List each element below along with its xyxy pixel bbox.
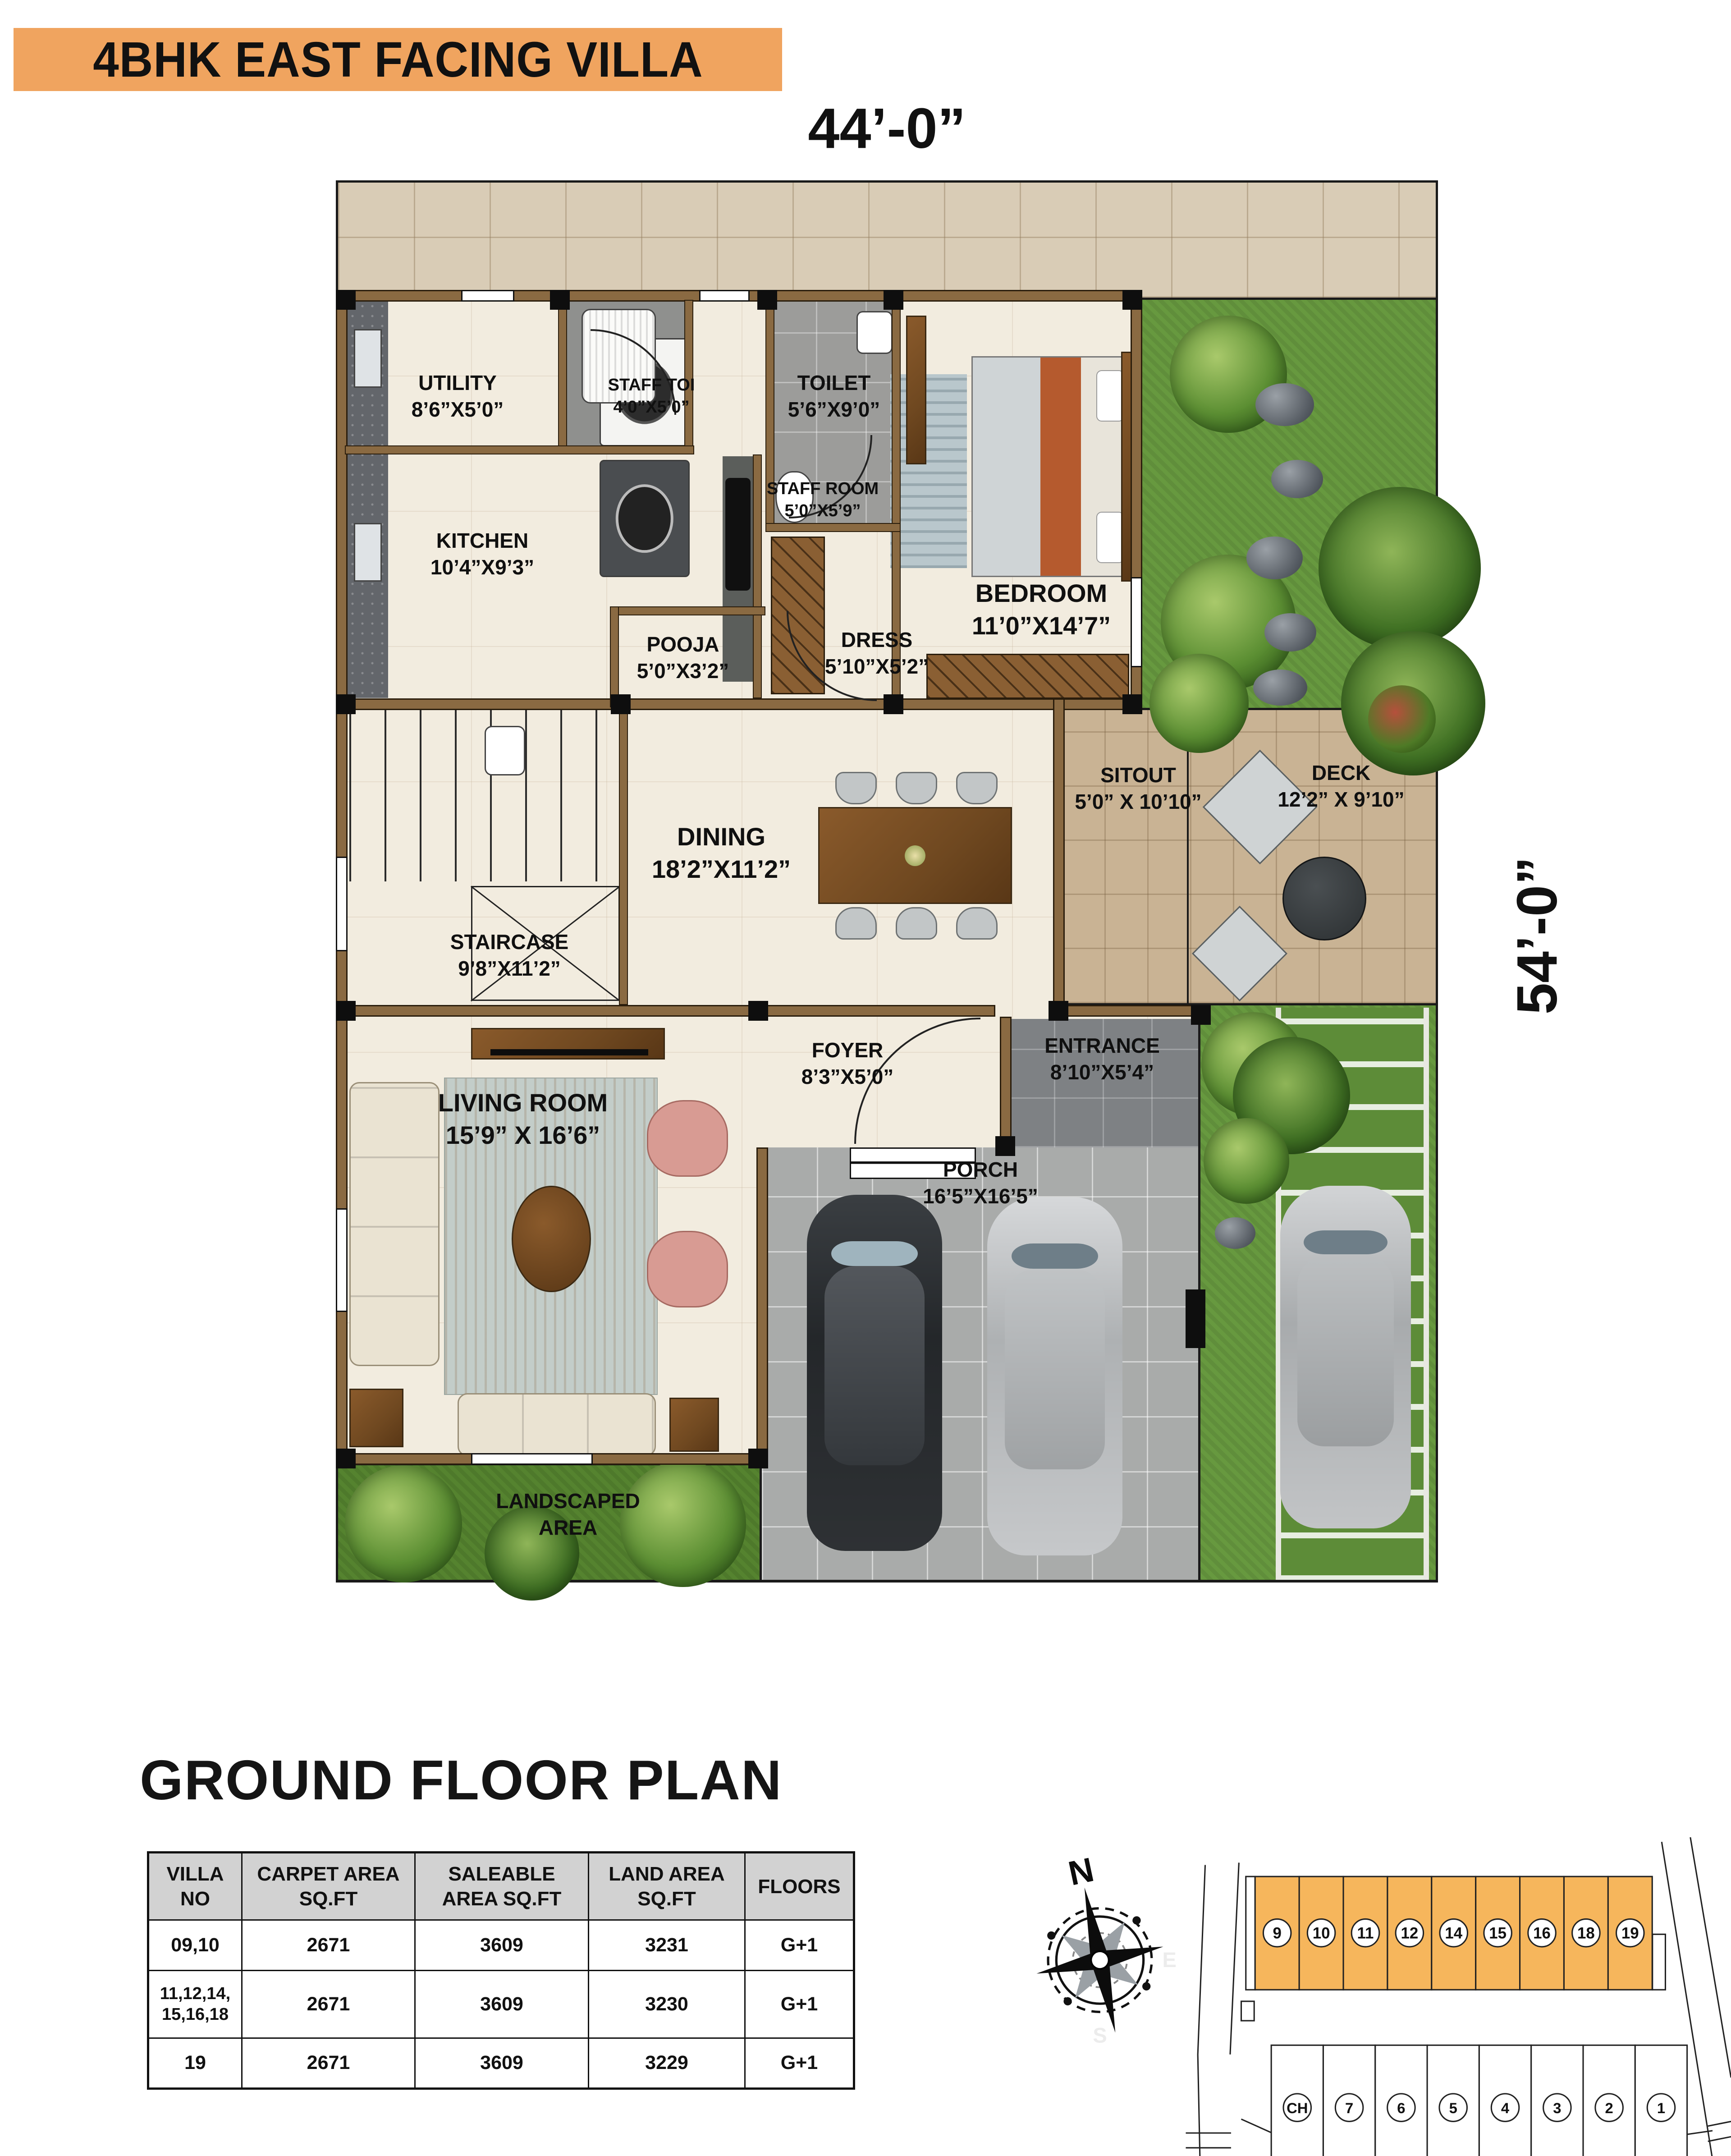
column-marker [336,1449,356,1468]
floor-plan-page: 4BHK EAST FACING VILLA 44’-0” 54’-0” [0,0,1731,2156]
cell-saleable-area: 3609 [415,2038,589,2089]
room-name: DINING [624,821,818,853]
room-name: STAFF ROOM [766,478,879,500]
bedroom-rug [890,374,967,568]
column-marker [1122,290,1142,310]
unit-number: 1 [1657,2100,1665,2116]
cell-land-area: 3231 [589,1920,745,1971]
unit-number: 6 [1397,2100,1405,2116]
car-roof [1297,1254,1394,1446]
unit-number: 12 [1401,1924,1418,1942]
cell-land-area: 3230 [589,1971,745,2038]
garden-plant [345,1465,462,1583]
road-line [1708,2137,1731,2141]
room-dims: 5’10”X5’2” [800,653,953,680]
room-name: KITCHEN [385,528,579,554]
title-banner: 4BHK EAST FACING VILLA [14,28,782,91]
unit-number: 16 [1533,1924,1551,1942]
dining-chair [896,772,937,804]
site-key-plan: 9 10 11 12 14 15 16 18 19 [1177,1837,1731,2156]
unit-number: 11 [1357,1924,1374,1942]
palm-tree [1319,487,1481,649]
tv-console [471,1028,665,1060]
cell-villa-no: 09,10 [148,1920,242,1971]
dimension-width: 44’-0” [336,96,1438,161]
dimension-height: 54’-0” [1503,818,1571,1053]
side-table [669,1398,719,1452]
column-marker [884,694,903,714]
side-table [349,1389,403,1447]
room-name: POOJA [615,631,751,658]
room-dims: 15’9” X 16’6” [417,1119,629,1151]
car-silver [987,1197,1122,1555]
armchair [647,1100,728,1177]
cell-saleable-area: 3609 [415,1920,589,1971]
room-dims: 8’6”X5’0” [363,396,552,423]
wall-segment [756,1147,768,1465]
compass-east-label: E [1162,1948,1176,1972]
column-marker [1049,1001,1068,1021]
column-marker [1186,1289,1205,1348]
room-label-foyer: FOYER8’3”X5’0” [769,1037,926,1090]
garden-rock [1215,1217,1255,1249]
room-name: BEDROOM [935,577,1147,610]
room-dims: 11’0”X14’7” [935,610,1147,642]
room-label-living: LIVING ROOM15’9” X 16’6” [417,1087,629,1151]
room-label-deck: DECK12’2” X 9’10” [1251,760,1431,813]
window [336,857,348,951]
unit-number: 19 [1621,1924,1639,1942]
road-line [1230,1862,1239,2054]
room-label-dress: DRESS5’10”X5’2” [800,627,953,680]
column-marker [1191,1005,1211,1025]
room-dims: 8’10”X5’4” [1012,1059,1192,1086]
window [699,290,750,302]
room-label-toilet: TOILET5’6”X9’0” [769,370,899,423]
compass-rose: N E S [1023,1855,1177,2044]
cell-floors: G+1 [745,2038,854,2089]
site-highlight-row: 9 10 11 12 14 15 16 18 19 [1255,1876,1652,1990]
room-dims: 5’0”X3’2” [615,658,751,684]
garden-plant [1149,654,1249,753]
car-windshield [1012,1243,1098,1269]
column-marker [884,290,903,310]
sink [354,523,382,582]
wall-segment [336,698,1142,710]
column-marker [550,290,570,310]
compass-north-label: N [1065,1855,1097,1893]
room-label-utility: UTILITY8’6”X5’0” [363,370,552,423]
unit-number: 4 [1501,2100,1510,2116]
coffee-table [512,1186,591,1292]
room-label-pooja: POOJA5’0”X3’2” [615,631,751,684]
table-row: 19 2671 3609 3229 G+1 [148,2038,854,2089]
dining-chair [956,772,998,804]
compass-dot [1141,1982,1151,1991]
road-line [1198,1865,1205,2156]
cell-floors: G+1 [745,1971,854,2038]
column-marker [336,290,356,310]
wash-basin [856,311,893,354]
column-marker [336,694,356,714]
unit-number: 14 [1445,1924,1462,1942]
cell-saleable-area: 3609 [415,1971,589,2038]
car-windshield [1304,1230,1388,1254]
hob [725,478,751,591]
room-name: LANDSCAPED AREA [494,1488,642,1541]
room-label-staircase: STAIRCASE9’8”X11’2” [412,929,606,982]
site-other-row: CH 7 6 5 4 3 2 1 [1271,2045,1687,2156]
column-marker [995,1136,1015,1156]
room-dims: 10’4”X9’3” [385,554,579,581]
cell-villa-no: 11,12,14, 15,16,18 [148,1971,242,2038]
room-label-kitchen: KITCHEN10’4”X9’3” [385,528,579,581]
car-windshield [831,1241,918,1266]
room-label-sitout: SITOUT5’0” X 10’10” [1064,762,1213,815]
room-label-staff-toi: STAFF TOI4’0”X5’0” [606,374,696,418]
room-name: UTILITY [363,370,552,396]
wardrobe [926,654,1129,699]
tv [490,1049,648,1055]
room-name: SITOUT [1064,762,1213,789]
column-marker [748,1001,768,1021]
unit-number: 10 [1313,1924,1330,1942]
flower-bush [1368,685,1436,753]
sofa-short [458,1393,656,1456]
col-header: VILLA NO [148,1853,242,1920]
rear-patio-tiles [336,180,1438,300]
window [336,1208,348,1312]
washer-drum [616,484,673,553]
cell-carpet-area: 2671 [242,1971,415,2038]
wash-basin [485,726,525,775]
table-row: 09,10 2671 3609 3231 G+1 [148,1920,854,1971]
room-dims: 5’0”X5’9” [766,500,879,522]
unit-number: 15 [1489,1924,1507,1942]
room-dims: 18’2”X11’2” [624,853,818,885]
unit-number: 7 [1345,2100,1353,2116]
room-dims: 5’0” X 10’10” [1064,789,1213,815]
room-name: ENTRANCE [1012,1032,1192,1059]
bed-blanket [973,358,1040,576]
column-marker [1122,694,1142,714]
room-label-staff-room: STAFF ROOM5’0”X5’9” [766,478,879,522]
car-driveway [1280,1186,1411,1528]
site-stair-block [1653,1934,1666,1990]
column-marker [748,1449,768,1468]
car-roof [824,1266,925,1465]
stepping-stone [1253,670,1307,706]
site-sliver [1246,1876,1255,1990]
room-dims: 16’5”X16’5” [890,1183,1071,1210]
cell-villa-no: 19 [148,2038,242,2089]
unit-number: 5 [1449,2100,1457,2116]
table-header-row: VILLA NO CARPET AREA SQ.FT SALEABLE AREA… [148,1853,854,1920]
room-name: STAFF TOI [606,374,696,396]
room-name: TOILET [769,370,899,396]
wall-segment [1053,1005,1202,1017]
dining-chair [835,907,877,940]
stepping-stone [1264,613,1316,651]
compass-south-label: S [1093,2023,1107,2044]
room-label-dining: DINING18’2”X11’2” [624,821,818,885]
plan-right-border [1436,300,1438,1583]
bed-runner [1040,358,1081,576]
unit-number: CH [1287,2100,1308,2116]
col-header: SALEABLE AREA SQ.FT [415,1853,589,1920]
room-name: PORCH [890,1156,1071,1183]
cell-carpet-area: 2671 [242,1920,415,1971]
section-title: GROUND FLOOR PLAN [140,1748,783,1812]
column-marker [336,1001,356,1021]
room-name: LIVING ROOM [417,1087,629,1119]
wall-segment [753,454,762,698]
unit-number: 18 [1577,1924,1595,1942]
wall-segment [336,1005,995,1017]
unit-number: 9 [1273,1924,1282,1942]
wall-segment [1000,1017,1012,1148]
wall-segment [765,523,901,532]
room-label-bedroom: BEDROOM11’0”X14’7” [935,577,1147,642]
column-marker [757,290,777,310]
tv-panel [906,316,926,464]
road-line [1690,1837,1731,2078]
washing-machine [600,460,690,577]
dining-chair [956,907,998,940]
cell-carpet-area: 2671 [242,2038,415,2089]
cell-land-area: 3229 [589,2038,745,2089]
dining-chair [896,907,937,940]
table-centerpiece [905,845,925,866]
room-name: STAIRCASE [412,929,606,955]
dining-table [818,807,1012,904]
deck-table [1282,857,1366,940]
room-dims: 5’6”X9’0” [769,396,899,423]
site-small-block [1241,2001,1255,2021]
compass-dot [1132,1916,1142,1926]
col-header: FLOORS [745,1853,854,1920]
floor-plan: UTILITY8’6”X5’0” STAFF TOI4’0”X5’0” TOIL… [336,180,1438,1583]
room-dims: 8’3”X5’0” [769,1064,926,1090]
stepping-stone [1246,537,1303,579]
pillow [1096,370,1124,422]
wall-segment [610,606,765,615]
garden-plant [1204,1118,1289,1204]
pillow [1096,512,1124,563]
room-label-porch: PORCH16’5”X16’5” [890,1156,1071,1210]
armchair [647,1231,728,1307]
room-dims: 9’8”X11’2” [412,955,606,982]
table-row: 11,12,14, 15,16,18 2671 3609 3230 G+1 [148,1971,854,2038]
room-name: FOYER [769,1037,926,1064]
stepping-stone [1255,383,1314,426]
dining-chair [835,772,877,804]
car-dark [807,1195,942,1551]
unit-number: 3 [1553,2100,1561,2116]
wall-segment [345,445,694,454]
col-header: LAND AREA SQ.FT [589,1853,745,1920]
wall-segment [558,300,567,449]
page-title: 4BHK EAST FACING VILLA [93,31,703,88]
road-line [1708,2121,1731,2126]
wall-segment [1053,698,1065,1017]
room-name: DRESS [800,627,953,653]
villa-area-table: VILLA NO CARPET AREA SQ.FT SALEABLE AREA… [147,1851,855,2090]
stepping-stone [1271,460,1323,498]
room-dims: 4’0”X5’0” [606,396,696,418]
deck-divider-line [1187,710,1189,1004]
window [471,1453,593,1465]
column-marker [611,694,631,714]
unit-number: 2 [1605,2100,1613,2116]
cell-floors: G+1 [745,1920,854,1971]
room-dims: 12’2” X 9’10” [1251,786,1431,813]
compass-dot [1046,1931,1056,1940]
bed [971,356,1134,577]
room-label-landscaped: LANDSCAPED AREA [494,1488,642,1541]
window [461,290,514,302]
col-header: CARPET AREA SQ.FT [242,1853,415,1920]
room-label-entrance: ENTRANCE8’10”X5’4” [1012,1032,1192,1086]
room-name: DECK [1251,760,1431,786]
car-roof [1005,1269,1105,1469]
